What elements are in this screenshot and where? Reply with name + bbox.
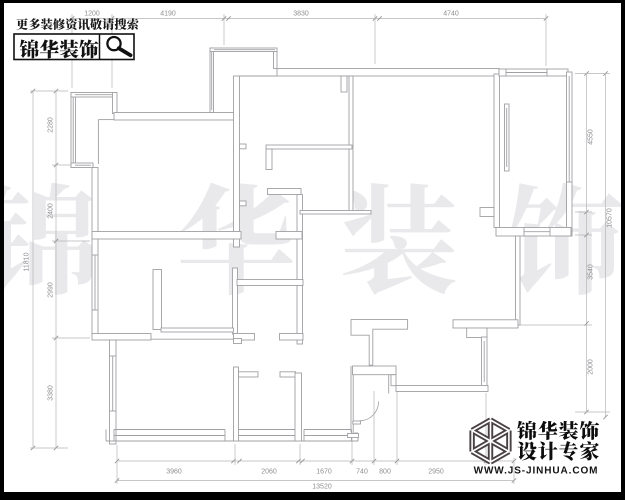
svg-text:1670: 1670 <box>316 469 332 476</box>
svg-text:10570: 10570 <box>607 208 614 228</box>
svg-text:1200: 1200 <box>84 11 100 18</box>
svg-text:740: 740 <box>356 469 368 476</box>
svg-text:11810: 11810 <box>24 252 31 271</box>
svg-text:3830: 3830 <box>293 11 309 18</box>
svg-text:2990: 2990 <box>48 282 55 298</box>
svg-text:4550: 4550 <box>588 129 595 145</box>
svg-text:4740: 4740 <box>443 11 459 18</box>
svg-text:13520: 13520 <box>312 484 332 491</box>
svg-text:3960: 3960 <box>166 469 182 476</box>
svg-text:WWW.JS-JINHUA.COM: WWW.JS-JINHUA.COM <box>474 466 599 477</box>
svg-text:3540: 3540 <box>588 264 595 280</box>
svg-text:3380: 3380 <box>48 385 55 401</box>
svg-text:2950: 2950 <box>428 469 444 476</box>
svg-text:4190: 4190 <box>160 11 176 18</box>
svg-text:2280: 2280 <box>48 117 55 133</box>
svg-text:2060: 2060 <box>261 469 277 476</box>
svg-text:2400: 2400 <box>48 203 55 219</box>
svg-text:2000: 2000 <box>588 359 595 375</box>
svg-text:800: 800 <box>379 469 391 476</box>
